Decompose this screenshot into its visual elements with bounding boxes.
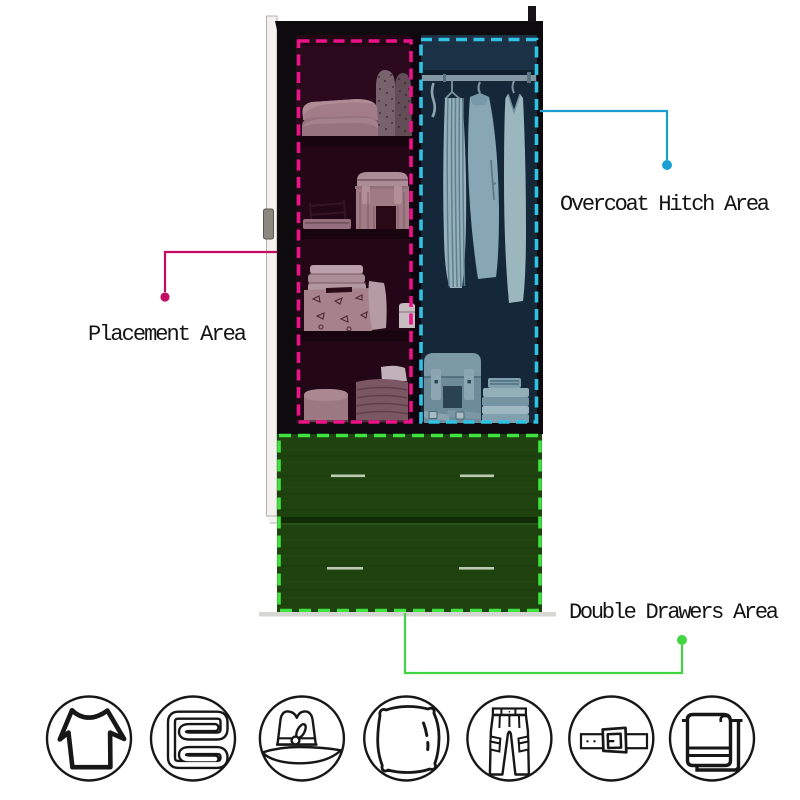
svg-text:Placement Area: Placement Area (88, 322, 247, 347)
svg-text:Overcoat Hitch Area: Overcoat Hitch Area (560, 192, 770, 217)
svg-text:Double Drawers Area: Double Drawers Area (569, 600, 779, 625)
